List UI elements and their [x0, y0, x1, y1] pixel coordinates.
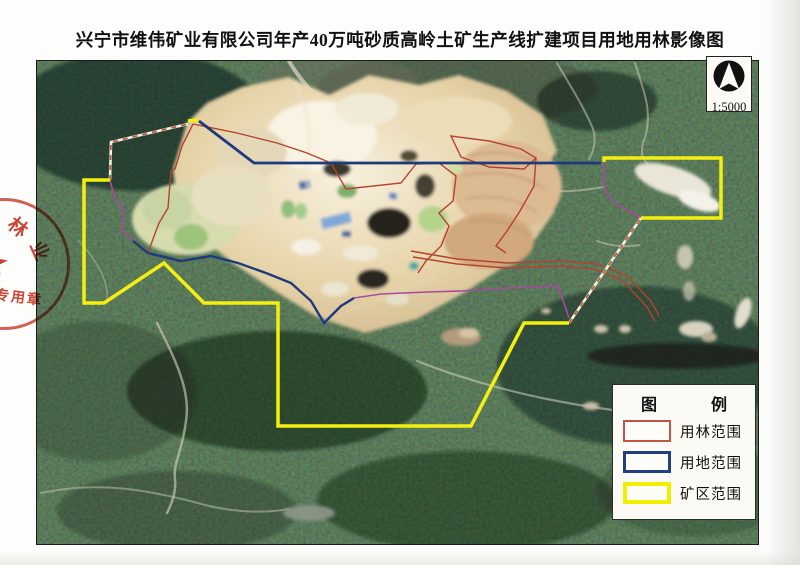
legend-swatch-mining-area [623, 482, 671, 504]
scale-label: 1:5000 [707, 100, 751, 114]
legend-swatch-forest-use [623, 420, 671, 442]
scan-shadow-right [766, 0, 800, 565]
seal-label: 专用章 [0, 284, 44, 310]
seal-arc-char: 业 [24, 236, 56, 264]
scan-shadow-bottom [0, 551, 800, 565]
scanned-map-page: 兴宁市维伟矿业有限公司年产40万吨砂质高岭土矿生产线扩建项目用地用林影像图 [0, 0, 800, 565]
legend-swatch-land-use [623, 451, 671, 473]
seal-arc-char: 林 [3, 210, 35, 243]
seal-star-icon: ★ [0, 243, 11, 282]
legend-row-forest-use: 用林范围 [623, 420, 745, 442]
legend-title: 图 例 [623, 391, 745, 415]
legend-row-land-use: 用地范围 [623, 451, 745, 473]
legend: 图 例 用林范围 用地范围 矿区范围 [612, 384, 756, 520]
legend-row-mining-area: 矿区范围 [623, 482, 745, 504]
north-indicator: 1:5000 [706, 56, 752, 112]
north-arrow-icon [711, 59, 747, 95]
page-title: 兴宁市维伟矿业有限公司年产40万吨砂质高岭土矿生产线扩建项目用地用林影像图 [0, 27, 800, 52]
